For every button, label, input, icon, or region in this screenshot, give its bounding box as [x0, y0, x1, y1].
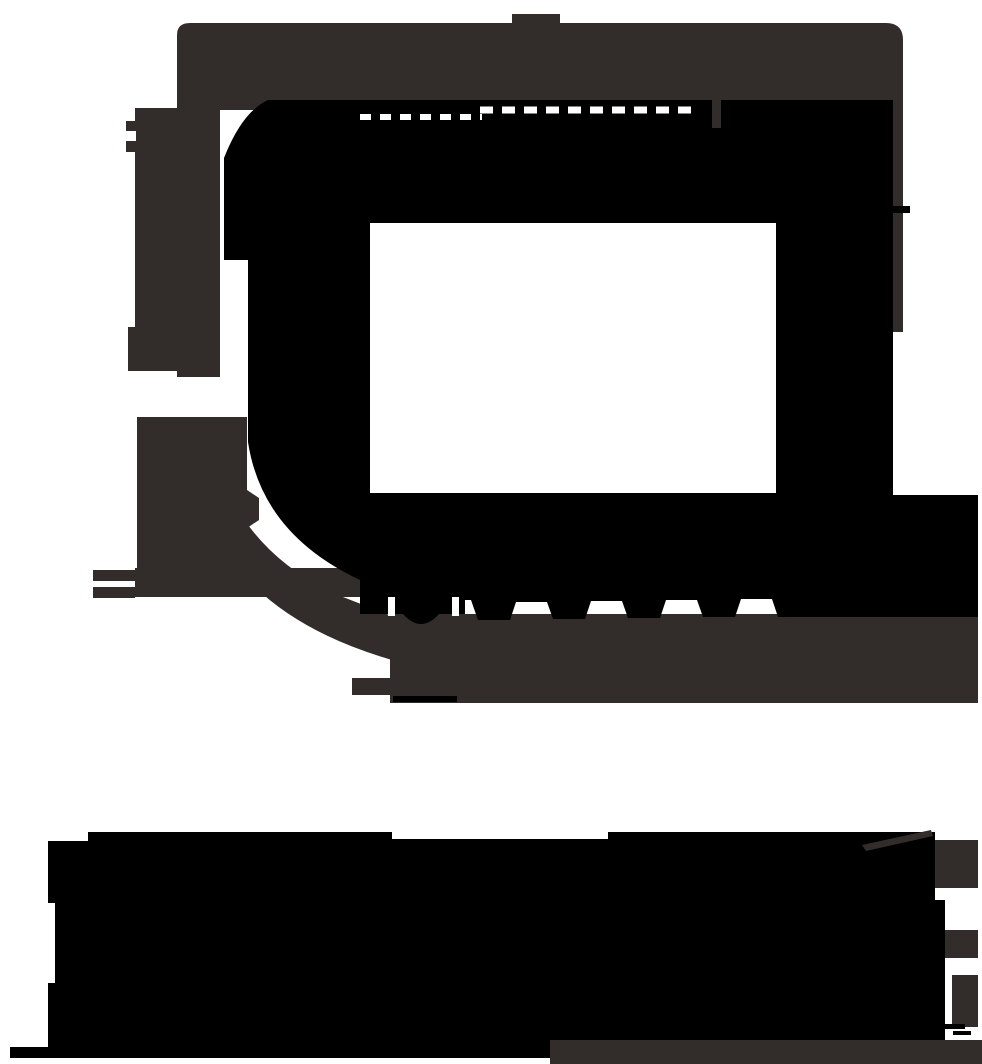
chin-band — [390, 614, 978, 703]
tab-notch — [124, 131, 136, 141]
stand-base-line — [393, 696, 457, 702]
stand-foot — [352, 678, 392, 695]
base-side-bar — [952, 975, 978, 1027]
image-canvas — [0, 0, 982, 1064]
stand-slit-left — [388, 597, 395, 616]
left-knob — [128, 327, 178, 371]
corner-mark-b — [953, 1031, 971, 1035]
base-ledge — [10, 1047, 552, 1058]
right-edge-tick — [893, 206, 910, 213]
left-column-connector — [177, 333, 220, 377]
base-corner-piece — [935, 840, 978, 888]
stand-slit-right — [452, 597, 459, 616]
artwork — [0, 0, 982, 1064]
screen — [370, 223, 776, 493]
bar-end-mark-bottom — [93, 587, 135, 598]
bar-end-mark-top — [93, 570, 135, 581]
base-side-piece — [945, 930, 978, 958]
left-panel-point — [247, 490, 259, 528]
base-bottom-strip — [550, 1040, 982, 1064]
top-tab — [512, 14, 560, 24]
corner-mark-a — [945, 1024, 965, 1029]
base-slab — [48, 832, 945, 1047]
screen-slit — [712, 95, 721, 128]
